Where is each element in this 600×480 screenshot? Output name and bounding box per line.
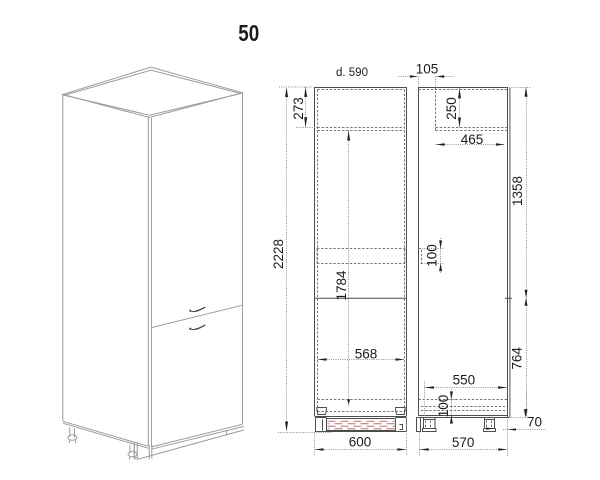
- svg-text:105: 105: [416, 62, 439, 77]
- svg-text:2228: 2228: [271, 239, 286, 269]
- svg-text:250: 250: [444, 97, 459, 120]
- svg-text:50: 50: [238, 20, 259, 46]
- svg-text:1358: 1358: [510, 176, 525, 206]
- svg-text:1784: 1784: [334, 270, 349, 301]
- svg-text:764: 764: [509, 347, 524, 370]
- svg-text:d. 590: d. 590: [336, 67, 368, 79]
- svg-text:570: 570: [452, 435, 475, 450]
- svg-text:568: 568: [355, 346, 378, 361]
- svg-text:70: 70: [527, 415, 542, 430]
- svg-text:465: 465: [461, 132, 484, 147]
- svg-text:550: 550: [453, 373, 476, 388]
- svg-text:100: 100: [436, 395, 451, 418]
- svg-text:273: 273: [291, 97, 306, 120]
- svg-text:100: 100: [424, 244, 439, 267]
- svg-text:600: 600: [349, 434, 372, 449]
